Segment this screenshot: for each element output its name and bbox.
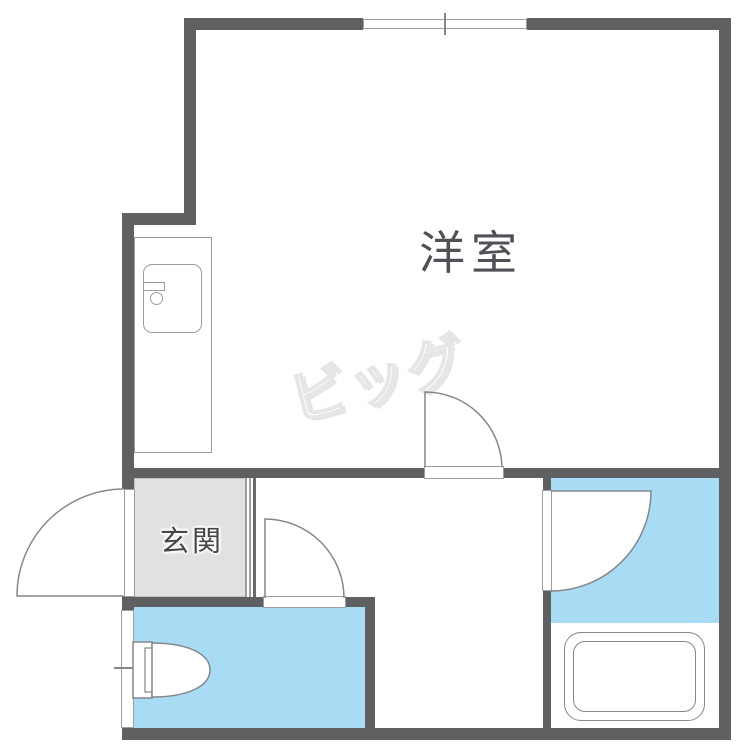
entrance-door-swing-fill xyxy=(17,489,124,596)
toilet-door-swing-fill xyxy=(265,519,344,598)
wall-toilet-right xyxy=(365,597,375,728)
toilet-room-floor xyxy=(134,607,365,728)
wall-bath-left-lower xyxy=(543,590,551,728)
room-door-opening xyxy=(424,466,504,479)
floor-plan: ビッグ 洋室 玄関 xyxy=(0,0,750,750)
kitchen-faucet-knob-icon xyxy=(150,292,163,305)
western-room-label: 洋室 xyxy=(419,217,523,283)
window-toilet xyxy=(121,610,134,728)
wall-upper-left xyxy=(184,18,196,225)
bathtub-inner xyxy=(573,641,696,712)
wall-bath-left-upper xyxy=(543,478,551,490)
wall-toilet-top-left xyxy=(122,597,264,607)
wall-top-right xyxy=(527,18,731,30)
hall-edge-line xyxy=(253,478,256,597)
entrance-label: 玄関 xyxy=(160,518,224,560)
entrance-step-line xyxy=(245,478,247,597)
toilet-door-swing-arc xyxy=(265,519,344,598)
entrance-door-swing-arc xyxy=(17,489,124,596)
toilet-door-opening xyxy=(263,596,346,608)
kitchen-faucet xyxy=(143,282,165,291)
watermark-logo: ビッグ xyxy=(274,308,480,441)
wall-bottom xyxy=(122,728,731,740)
wall-right xyxy=(719,18,731,740)
wall-top-left xyxy=(184,18,363,30)
entrance-step-line-2 xyxy=(249,478,251,597)
wall-mid-left xyxy=(134,468,424,478)
window-top-center-tick xyxy=(444,13,446,35)
bathroom-door-leaf xyxy=(542,490,552,591)
window-toilet-center-tick xyxy=(114,667,140,669)
wall-mid-right xyxy=(502,468,719,478)
bathroom-floor xyxy=(551,478,719,623)
entrance-door-leaf xyxy=(124,489,135,597)
wall-left xyxy=(122,213,134,489)
